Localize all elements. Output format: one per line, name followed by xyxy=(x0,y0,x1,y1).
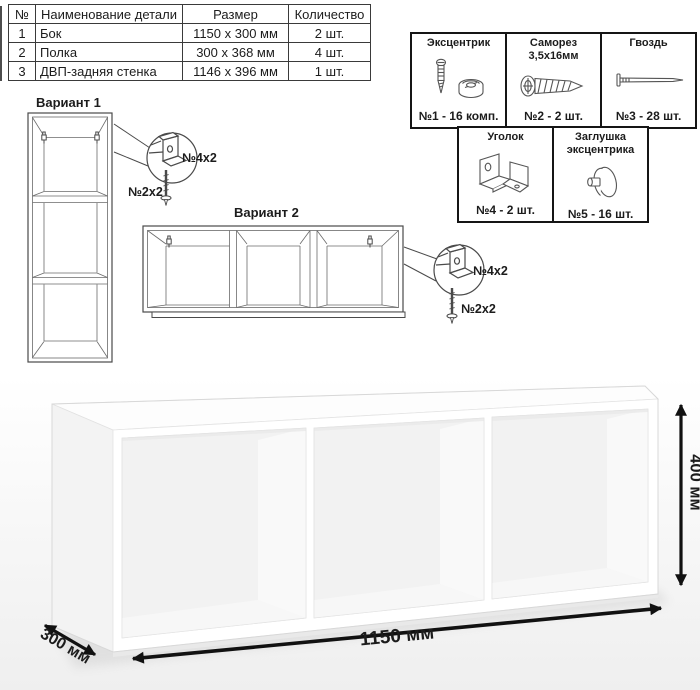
hardware-cell-cam: Эксцентрик xyxy=(410,32,507,129)
variant1-screw-label: №2х2 xyxy=(128,185,163,199)
col-header-num: № xyxy=(9,5,36,24)
cam-cap-icon xyxy=(554,157,647,207)
part-name: Полка xyxy=(36,43,183,62)
nail-icon xyxy=(602,50,695,109)
parts-table-header-row: № Наименование детали Размер Количество xyxy=(9,5,371,24)
hardware-title: Гвоздь xyxy=(605,37,693,50)
table-row: 3 ДВП-задняя стенка 1146 x 396 мм 1 шт. xyxy=(9,62,371,81)
variant1-title: Вариант 1 xyxy=(36,95,101,110)
hardware-cell-nail: Гвоздь №3 - 28 шт. xyxy=(600,32,697,129)
col-header-qty: Количество xyxy=(289,5,371,24)
variant2-bracket-label: №4х2 xyxy=(473,264,508,278)
assembly-instruction-sheet: № Наименование детали Размер Количество … xyxy=(0,0,700,690)
part-num: 2 xyxy=(9,43,36,62)
variant2-title: Вариант 2 xyxy=(234,205,299,220)
hardware-cell-screw: Саморез 3,5х16мм №2 - 2 шт. xyxy=(505,32,602,129)
col-header-size: Размер xyxy=(183,5,289,24)
parts-table: № Наименование детали Размер Количество … xyxy=(8,4,371,81)
hardware-title: Эксцентрик xyxy=(415,37,503,50)
part-size: 1150 x 300 мм xyxy=(183,24,289,43)
variant1-drawing xyxy=(28,113,112,362)
variant2-drawing xyxy=(143,226,405,318)
part-size: 300 x 368 мм xyxy=(183,43,289,62)
hardware-panel: Эксцентрик xyxy=(410,32,699,225)
part-size: 1146 x 396 мм xyxy=(183,62,289,81)
hardware-count: №5 - 16 шт. xyxy=(568,207,634,221)
part-name: Бок xyxy=(36,24,183,43)
hardware-count: №1 - 16 комп. xyxy=(419,109,499,123)
col-header-name: Наименование детали xyxy=(36,5,183,24)
part-name: ДВП-задняя стенка xyxy=(36,62,183,81)
hardware-count: №3 - 28 шт. xyxy=(616,109,682,123)
screw-icon xyxy=(507,63,600,109)
table-row: 1 Бок 1150 x 300 мм 2 шт. xyxy=(9,24,371,43)
hardware-cell-bracket: Уголок №4 - 2 шт. xyxy=(457,126,554,223)
cam-bolt-and-lock-icon xyxy=(412,50,505,109)
hardware-count: №4 - 2 шт. xyxy=(476,203,535,217)
hardware-title: Уголок xyxy=(462,131,550,144)
part-qty: 1 шт. xyxy=(289,62,371,81)
hardware-cell-cap: Заглушка эксцентрика №5 - 16 шт. xyxy=(552,126,649,223)
variant2-screw-label: №2х2 xyxy=(461,302,496,316)
hardware-title: Заглушка эксцентрика xyxy=(557,131,645,157)
hardware-title: Саморез 3,5х16мм xyxy=(510,37,598,63)
part-qty: 2 шт. xyxy=(289,24,371,43)
part-num: 3 xyxy=(9,62,36,81)
hardware-count: №2 - 2 шт. xyxy=(524,109,583,123)
table-row: 2 Полка 300 x 368 мм 4 шт. xyxy=(9,43,371,62)
variant1-bracket-label: №4х2 xyxy=(182,151,217,165)
part-qty: 4 шт. xyxy=(289,43,371,62)
height-dimension-label: 400 мм xyxy=(686,433,700,533)
corner-bracket-icon xyxy=(459,144,552,203)
part-num: 1 xyxy=(9,24,36,43)
